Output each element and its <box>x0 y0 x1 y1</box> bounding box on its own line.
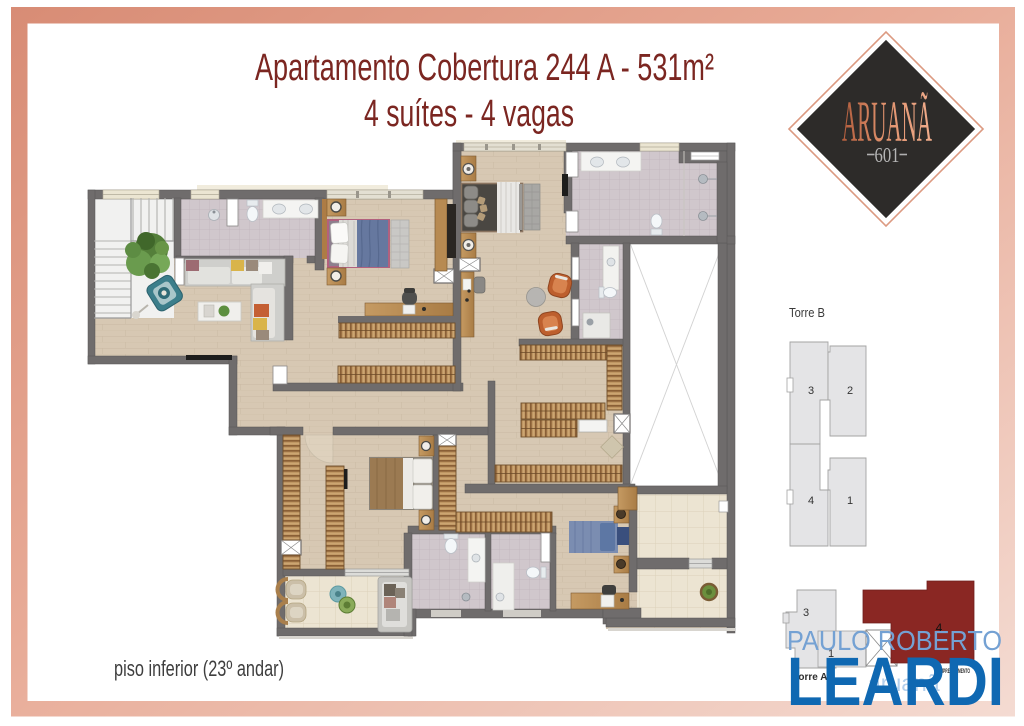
svg-text:4: 4 <box>808 495 814 507</box>
svg-text:LEARDI: LEARDI <box>787 643 1004 720</box>
svg-text:2: 2 <box>847 385 853 397</box>
svg-text:Torre B: Torre B <box>789 306 825 320</box>
svg-text:601: 601 <box>875 143 900 167</box>
svg-text:Apartamento Cobertura 244 A -: Apartamento Cobertura 244 A - 531m² <box>255 47 714 89</box>
svg-text:4 suítes - 4 vagas: 4 suítes - 4 vagas <box>364 93 574 135</box>
svg-text:3: 3 <box>808 385 814 397</box>
svg-text:piso inferior (23º andar): piso inferior (23º andar) <box>114 656 284 681</box>
svg-text:1: 1 <box>847 495 853 507</box>
svg-text:3: 3 <box>803 607 809 619</box>
